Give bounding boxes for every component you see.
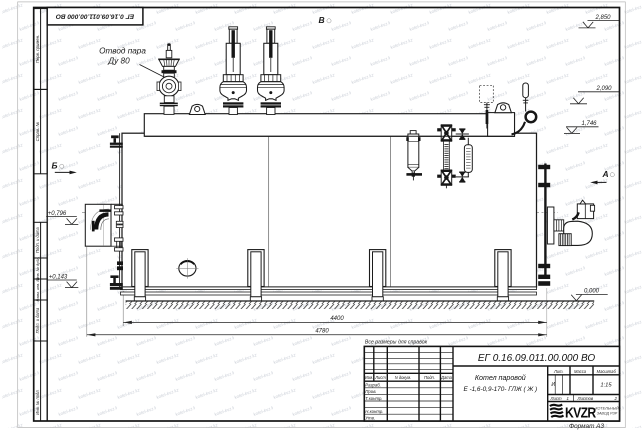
svg-text:Е -1,6-0,9-170- ГЛЖ ( Ж ): Е -1,6-0,9-170- ГЛЖ ( Ж ) — [463, 386, 537, 393]
svg-text:Лист: Лист — [374, 375, 386, 380]
svg-text:И: И — [551, 382, 555, 388]
svg-text:Утв.: Утв. — [365, 416, 375, 421]
svg-text:Справ. №: Справ. № — [35, 121, 40, 141]
svg-text:Подп. и дата: Подп. и дата — [35, 307, 40, 333]
svg-text:Масса: Масса — [574, 369, 587, 374]
svg-text:Масштаб: Масштаб — [597, 369, 617, 374]
svg-text:Подп. и дата: Подп. и дата — [35, 227, 40, 253]
svg-text:Лит.: Лит. — [553, 369, 564, 374]
svg-text:Перв. примен.: Перв. примен. — [35, 35, 40, 64]
svg-text:+0,796: +0,796 — [48, 211, 67, 217]
svg-text:Дата: Дата — [440, 375, 453, 380]
svg-text:Б: Б — [52, 161, 58, 171]
svg-text:ЕГ 0.16.09.011.00.000 ВО: ЕГ 0.16.09.011.00.000 ВО — [55, 13, 134, 20]
svg-text:Инв. № подл.: Инв. № подл. — [35, 389, 40, 414]
svg-text:0,000: 0,000 — [584, 289, 600, 295]
svg-text:4400: 4400 — [330, 316, 344, 322]
svg-text:Все размеры для справок: Все размеры для справок — [365, 339, 428, 345]
svg-text:+0,143: +0,143 — [49, 274, 68, 280]
svg-text:Формат А3: Формат А3 — [569, 423, 604, 430]
svg-text:КОТЕЛЬНЫЙ: КОТЕЛЬНЫЙ — [595, 407, 619, 411]
svg-text:Взам. инв. №: Взам. инв. № — [35, 277, 40, 302]
svg-text:N докум.: N докум. — [395, 375, 412, 380]
svg-text:А: А — [602, 169, 609, 179]
svg-text:Котел паровой: Котел паровой — [475, 374, 526, 382]
svg-text:Лист: Лист — [550, 396, 562, 401]
svg-text:1:15: 1:15 — [600, 383, 612, 389]
svg-text:Ду 80: Ду 80 — [107, 57, 130, 66]
svg-text:4780: 4780 — [315, 328, 329, 334]
svg-text:2,850: 2,850 — [594, 15, 611, 21]
svg-text:Изм.: Изм. — [365, 375, 374, 380]
svg-text:Подп.: Подп. — [424, 375, 435, 380]
svg-text:Инв. № дубл.: Инв. № дубл. — [35, 257, 40, 281]
svg-text:Пров.: Пров. — [365, 389, 376, 394]
svg-text:1,746: 1,746 — [581, 121, 597, 127]
svg-text:Т.контр.: Т.контр. — [365, 396, 382, 401]
svg-text:Н.контр.: Н.контр. — [365, 409, 383, 414]
svg-text:В: В — [319, 15, 325, 25]
svg-text:KVZR: KVZR — [565, 405, 597, 421]
svg-text:ЕГ 0.16.09.011.00.000 ВО: ЕГ 0.16.09.011.00.000 ВО — [478, 353, 596, 364]
svg-text:ЗАВОД РЗР: ЗАВОД РЗР — [597, 412, 618, 416]
svg-text:Отвод пара: Отвод пара — [99, 47, 146, 56]
svg-text:Листов: Листов — [577, 396, 594, 401]
svg-text:2,090: 2,090 — [595, 86, 612, 92]
svg-text:Разраб.: Разраб. — [365, 383, 381, 388]
